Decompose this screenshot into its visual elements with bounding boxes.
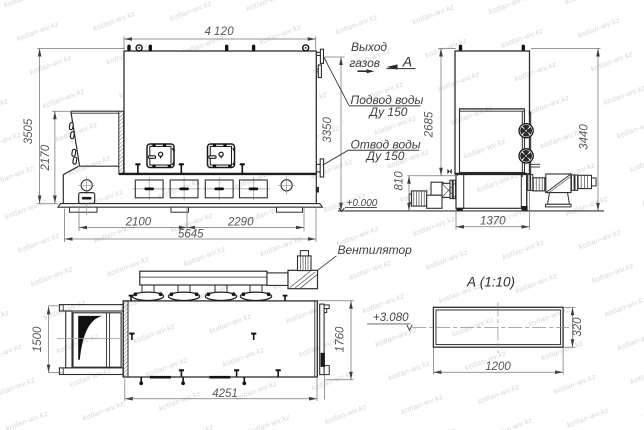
svg-text:5645: 5645 bbox=[178, 228, 204, 240]
svg-text:2685: 2685 bbox=[424, 111, 436, 138]
svg-text:Ду 150: Ду 150 bbox=[368, 105, 408, 119]
svg-text:2290: 2290 bbox=[227, 216, 254, 228]
svg-text:2100: 2100 bbox=[125, 216, 152, 228]
svg-text:1370: 1370 bbox=[480, 216, 506, 228]
svg-text:А (1:10): А (1:10) bbox=[466, 275, 515, 290]
svg-text:+3.080: +3.080 bbox=[373, 312, 409, 324]
svg-text:4251: 4251 bbox=[212, 388, 238, 400]
svg-text:810: 810 bbox=[393, 171, 405, 191]
svg-text:3505: 3505 bbox=[23, 118, 35, 144]
svg-text:320: 320 bbox=[572, 317, 584, 337]
svg-text:4 120: 4 120 bbox=[205, 26, 235, 38]
svg-text:1500: 1500 bbox=[32, 326, 44, 352]
svg-text:газов: газов bbox=[350, 56, 381, 70]
svg-text:А: А bbox=[402, 54, 412, 70]
svg-text:3440: 3440 bbox=[579, 124, 591, 150]
svg-text:1760: 1760 bbox=[334, 326, 346, 352]
svg-text:2170: 2170 bbox=[40, 144, 52, 171]
svg-text:Выход: Выход bbox=[351, 40, 387, 54]
svg-text:Вентилятор: Вентилятор bbox=[338, 243, 413, 257]
svg-text:3350: 3350 bbox=[322, 117, 334, 143]
svg-text:1200: 1200 bbox=[485, 361, 511, 373]
svg-text:Ду 150: Ду 150 bbox=[365, 149, 405, 163]
